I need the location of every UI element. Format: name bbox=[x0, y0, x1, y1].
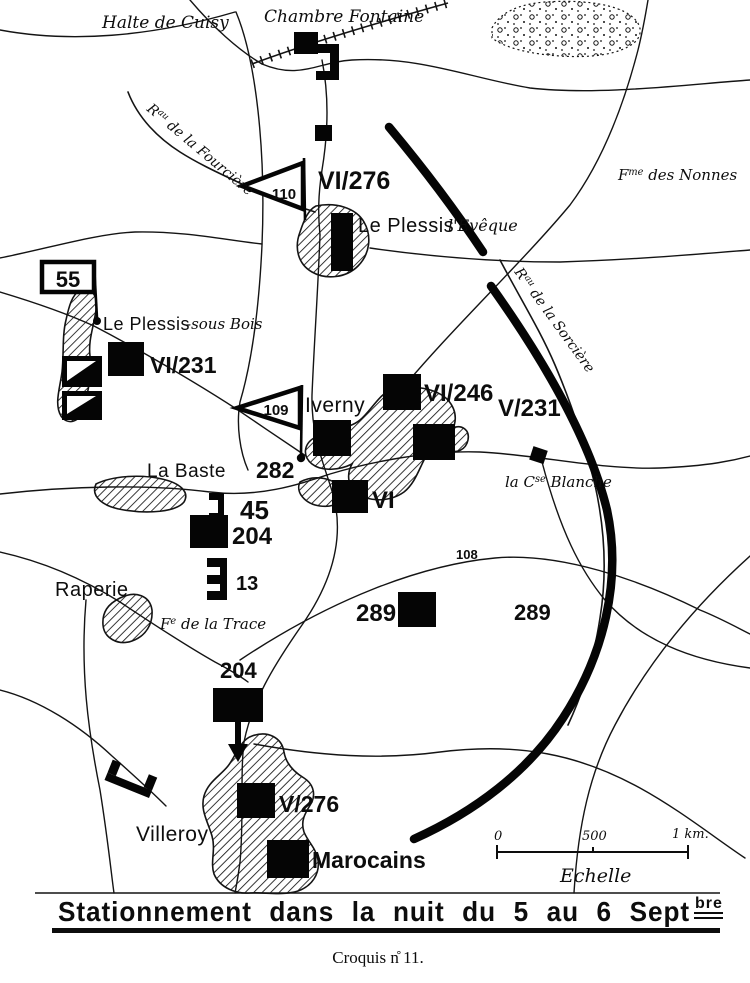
bracket-symbol-13 bbox=[207, 558, 227, 600]
label-13: 13 bbox=[236, 573, 258, 595]
unit-block-le-plessis-eveque bbox=[331, 213, 353, 271]
label-marocains: Marocains bbox=[312, 847, 426, 873]
unit-square-chambre-fontaine bbox=[294, 32, 318, 54]
unit-square-204-south bbox=[213, 688, 263, 722]
label-le-plessis-sous-bois-suffix: -sous Bois bbox=[186, 315, 263, 333]
road-marker-cse-blanche bbox=[529, 446, 548, 464]
unit-square-vi231 bbox=[108, 342, 144, 376]
title-underline bbox=[52, 928, 720, 933]
label-flag-110: 110 bbox=[272, 186, 296, 203]
label-289-east: 289 bbox=[514, 600, 551, 625]
label-fe-de-la-trace: Fe de la Trace bbox=[159, 615, 266, 633]
scale-1km: 1 km. bbox=[672, 827, 709, 842]
label-raperie: Raperie bbox=[55, 579, 129, 601]
unit-square-marocains bbox=[267, 840, 309, 878]
label-iverny: Iverny bbox=[305, 394, 365, 417]
label-stream-fourciere: Rau de la Fourcière bbox=[143, 100, 257, 199]
split-square-2 bbox=[62, 391, 102, 420]
unit-square-289 bbox=[398, 592, 436, 627]
label-le-plessis-eveque: Le Plessis bbox=[358, 215, 454, 237]
label-108: 108 bbox=[456, 547, 478, 562]
map-title: Stationnement dans la nuit du 5 au 6 Sep… bbox=[58, 896, 690, 927]
road-left-vertical bbox=[84, 600, 114, 893]
scale-0: 0 bbox=[494, 829, 502, 844]
label-le-plessis-eveque-suffix: l'Evêque bbox=[448, 216, 518, 235]
label-vi246: VI/246 bbox=[424, 380, 493, 407]
road-right-south bbox=[542, 462, 750, 668]
wood-area bbox=[492, 1, 640, 56]
unit-square-iverny-east bbox=[413, 424, 455, 460]
label-45: 45 bbox=[240, 495, 269, 525]
unit-square-vi bbox=[332, 480, 368, 513]
label-le-plessis-sous-bois: Le Plessis bbox=[103, 314, 190, 334]
road-left-eastwest bbox=[0, 232, 262, 258]
label-289-west: 289 bbox=[356, 600, 396, 627]
label-cse-blanche: la Cse Blanche bbox=[505, 473, 612, 491]
split-square-1 bbox=[62, 356, 102, 387]
map-svg: Halte de Cuisy Chambre Fontaine Rau de l… bbox=[0, 0, 750, 983]
label-fme-des-nonnes: Fme des Nonnes bbox=[617, 166, 738, 184]
label-halte-de-cuisy: Halte de Cuisy bbox=[101, 13, 229, 33]
label-vi: VI bbox=[372, 487, 395, 514]
unit-square-vi246 bbox=[383, 374, 421, 410]
croquis-page: Halte de Cuisy Chambre Fontaine Rau de l… bbox=[0, 0, 750, 983]
map-title-superscript: bre bbox=[695, 895, 723, 912]
scale-500: 500 bbox=[582, 829, 607, 844]
map-caption: Croquis n̊ 11. bbox=[332, 948, 423, 967]
unit-square-v276 bbox=[237, 783, 275, 818]
label-flag-55: 55 bbox=[56, 267, 80, 292]
label-v276: V/276 bbox=[279, 791, 339, 817]
label-204-center: 204 bbox=[232, 523, 273, 550]
label-flag-109: 109 bbox=[263, 402, 288, 419]
label-stream-sorciere: Rau de la Sorcière bbox=[510, 264, 597, 376]
label-204-south: 204 bbox=[220, 658, 257, 683]
label-vi276: VI/276 bbox=[318, 167, 390, 195]
label-villeroy: Villeroy bbox=[136, 823, 208, 846]
label-la-baste: La Baste bbox=[147, 461, 226, 482]
flagpole-109-dot bbox=[297, 454, 305, 462]
scale-bar: 0 500 1 km. Echelle bbox=[494, 827, 709, 887]
label-vi231: VI/231 bbox=[150, 352, 217, 378]
unit-square-north bbox=[315, 125, 332, 141]
road-108 bbox=[240, 557, 750, 660]
label-282: 282 bbox=[256, 457, 294, 483]
bracket-symbol-villeroy bbox=[105, 760, 158, 798]
unit-square-204 bbox=[190, 515, 228, 548]
flagpole-55-dot bbox=[93, 317, 101, 325]
scale-echelle: Echelle bbox=[559, 865, 631, 887]
road-eveque-east bbox=[370, 248, 750, 262]
label-v231: V/231 bbox=[498, 395, 561, 422]
unit-square-iverny-west bbox=[313, 420, 351, 456]
label-chambre-fontaine: Chambre Fontaine bbox=[264, 7, 424, 27]
bracket-symbol-chambre-fontaine bbox=[316, 44, 339, 80]
